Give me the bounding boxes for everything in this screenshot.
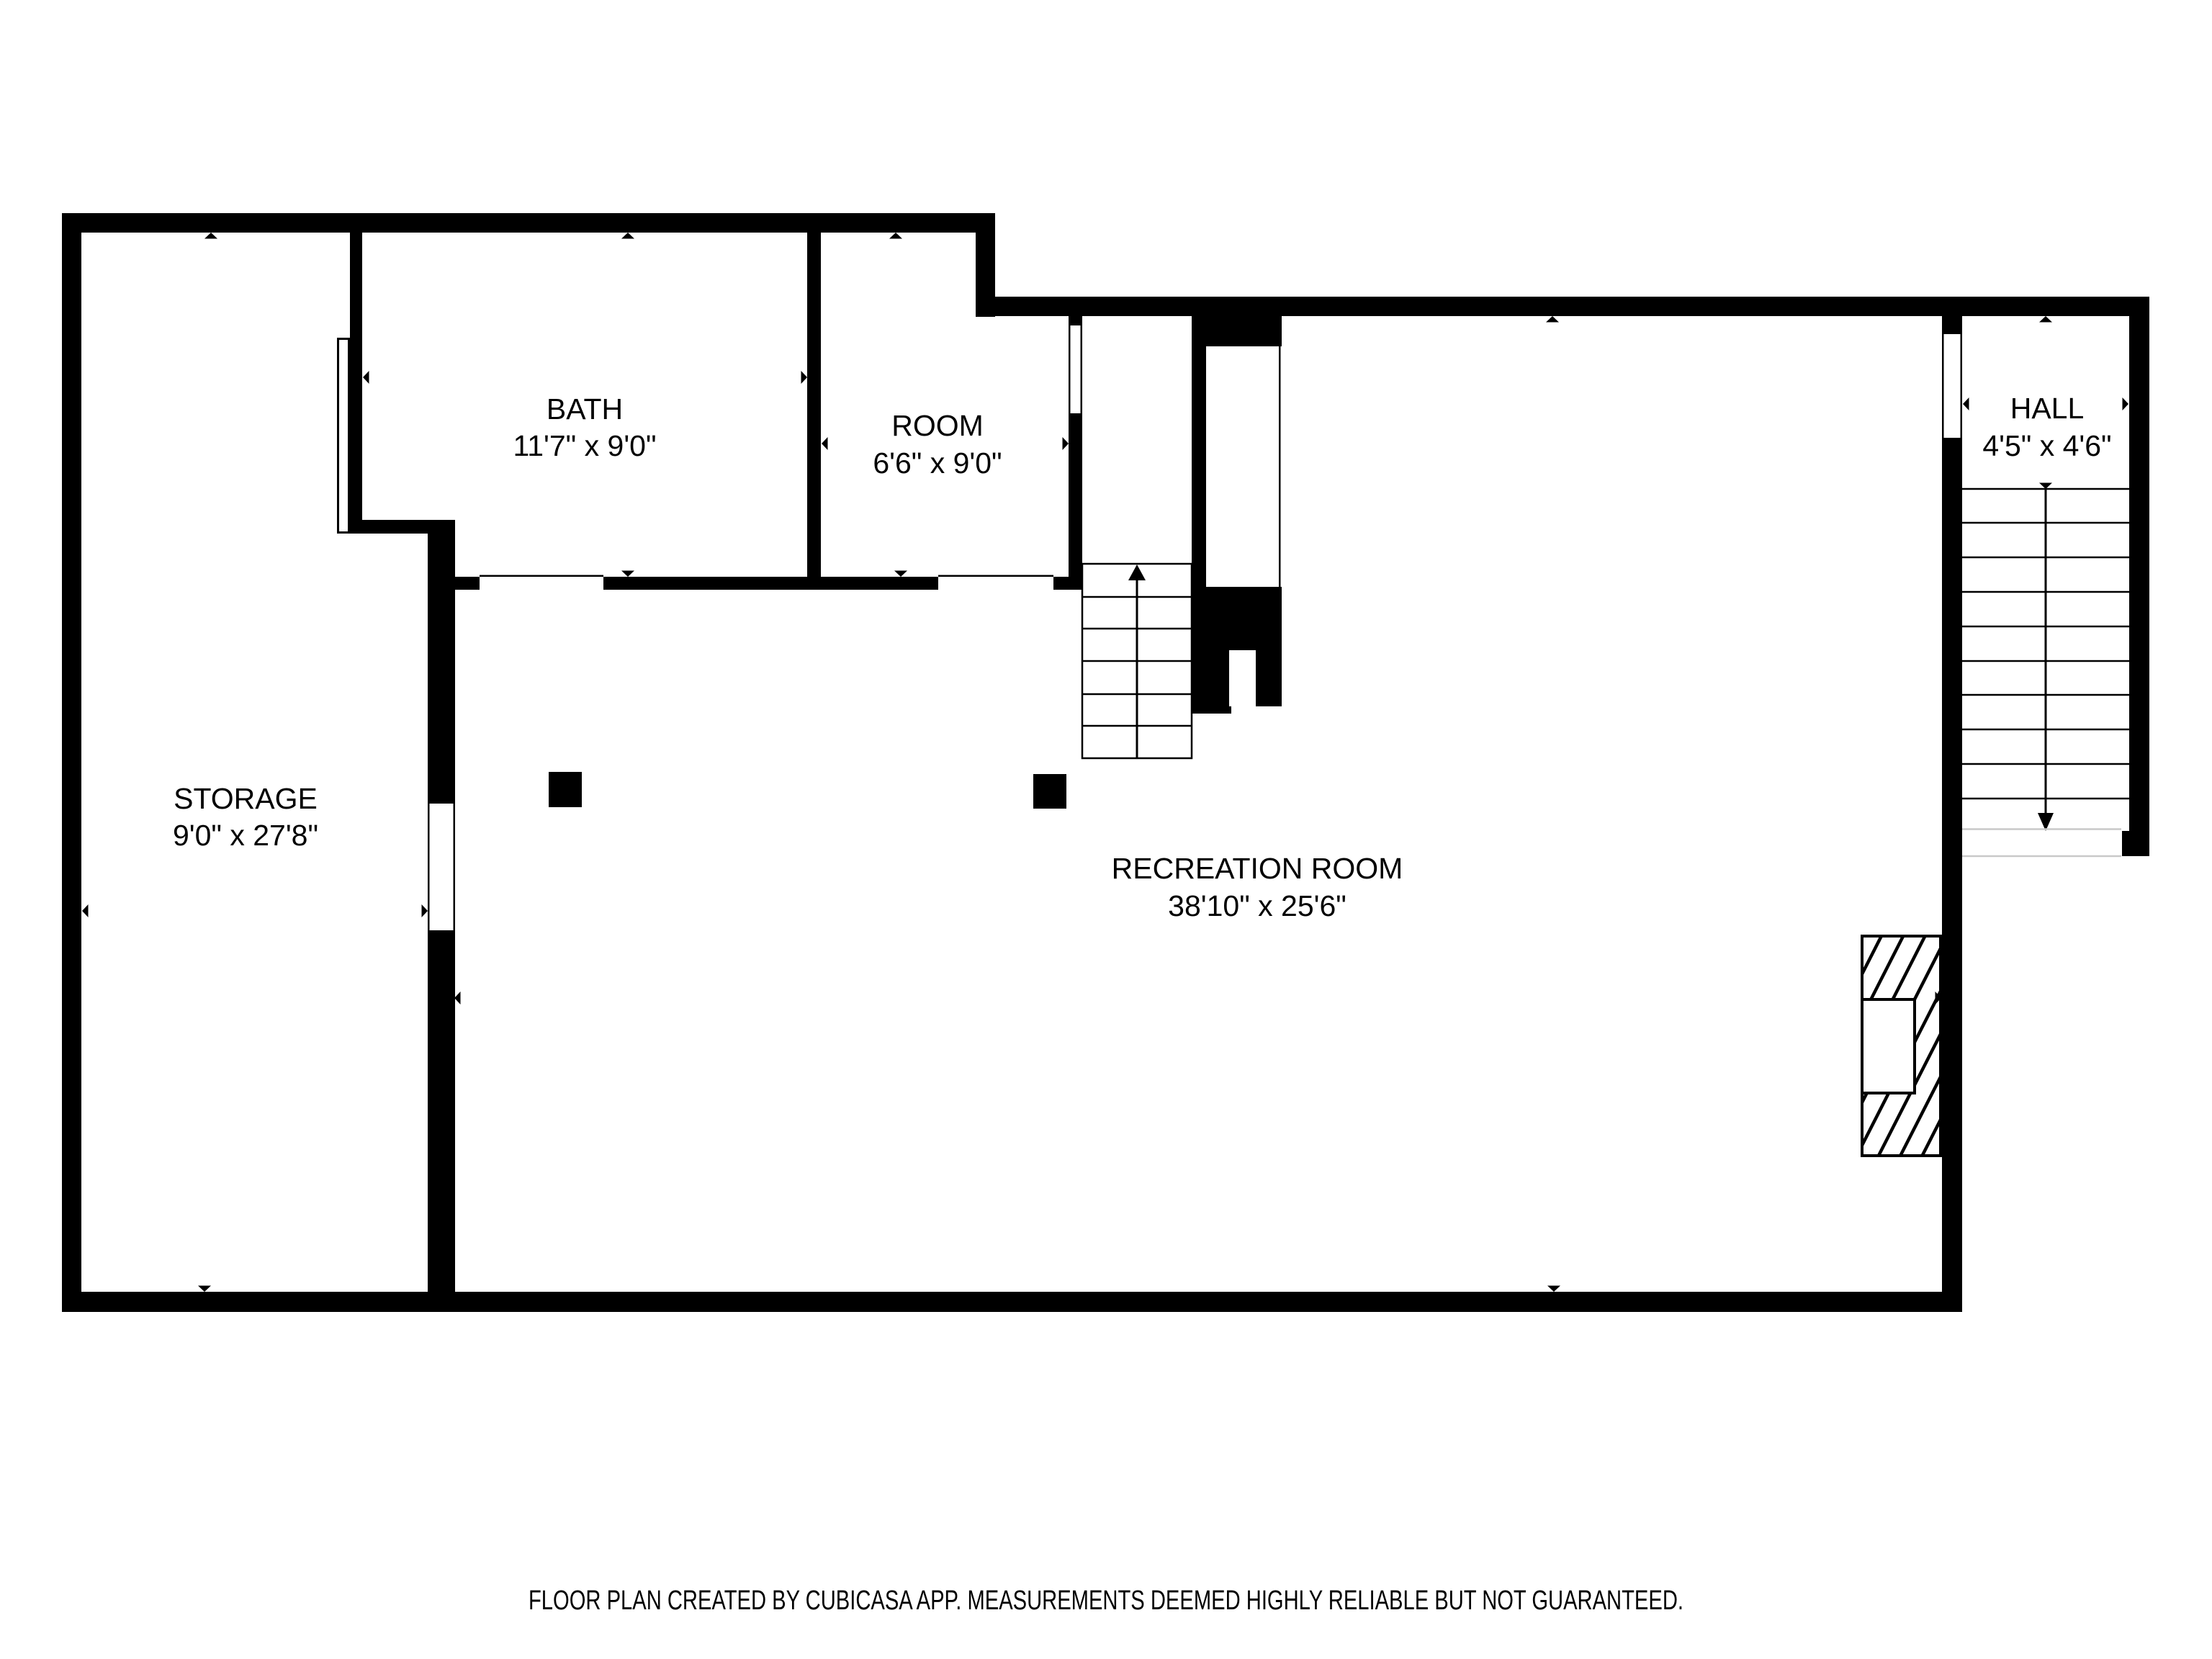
svg-text:HALL: HALL (2010, 392, 2085, 425)
svg-text:11'7" x 9'0": 11'7" x 9'0" (513, 429, 656, 462)
svg-text:STORAGE: STORAGE (174, 782, 318, 815)
svg-text:RECREATION ROOM: RECREATION ROOM (1112, 852, 1403, 885)
svg-text:6'6" x 9'0": 6'6" x 9'0" (873, 446, 1002, 480)
svg-text:FLOOR PLAN CREATED BY CUBICASA: FLOOR PLAN CREATED BY CUBICASA APP. MEAS… (529, 1585, 1683, 1616)
svg-text:4'5" x 4'6": 4'5" x 4'6" (1982, 429, 2111, 462)
svg-text:38'10" x 25'6": 38'10" x 25'6" (1168, 889, 1346, 922)
svg-text:ROOM: ROOM (891, 409, 984, 442)
svg-text:BATH: BATH (547, 392, 623, 426)
svg-text:9'0" x 27'8": 9'0" x 27'8" (173, 819, 318, 852)
